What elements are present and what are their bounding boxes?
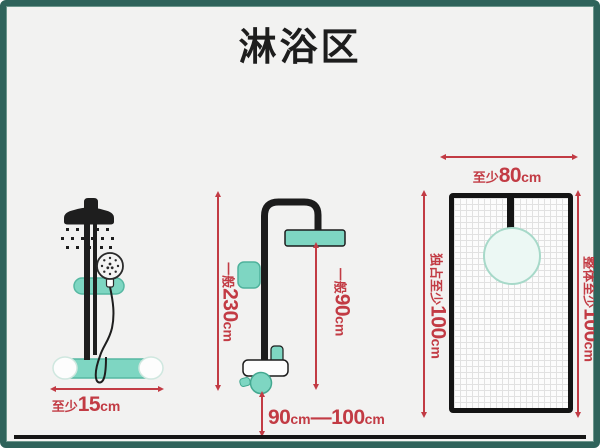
valve-floor-distance-label: 90cm—100cm [268, 407, 385, 428]
shower-area-infographic: 淋浴区 [0, 0, 600, 448]
overall-depth-label: 整体至少100cm [581, 256, 600, 362]
dim-line-overall-depth [577, 195, 579, 413]
pan-width-label: 至少80cm [473, 165, 542, 186]
shower-column-icon [46, 186, 176, 386]
page-title: 淋浴区 [6, 16, 594, 71]
shower-area-top-view [449, 193, 573, 413]
head-height-label: 一般90cm [332, 268, 353, 337]
shower-head-top-view-icon [483, 227, 541, 285]
dim-line-head-height [315, 247, 317, 385]
pipe-bracket-icon [238, 262, 260, 288]
dim-line-valve-floor [261, 396, 263, 432]
exclusive-depth-label: 独占至少100cm [428, 253, 449, 359]
dim-line-pan-width [445, 156, 573, 158]
floor-line [14, 435, 586, 439]
pipe-height-label: 一般230cm [220, 262, 241, 342]
dim-line-valve-spacing [55, 388, 159, 390]
valve-spacing-label: 至少15cm [52, 394, 121, 415]
dim-line-exclusive-depth [423, 195, 425, 413]
